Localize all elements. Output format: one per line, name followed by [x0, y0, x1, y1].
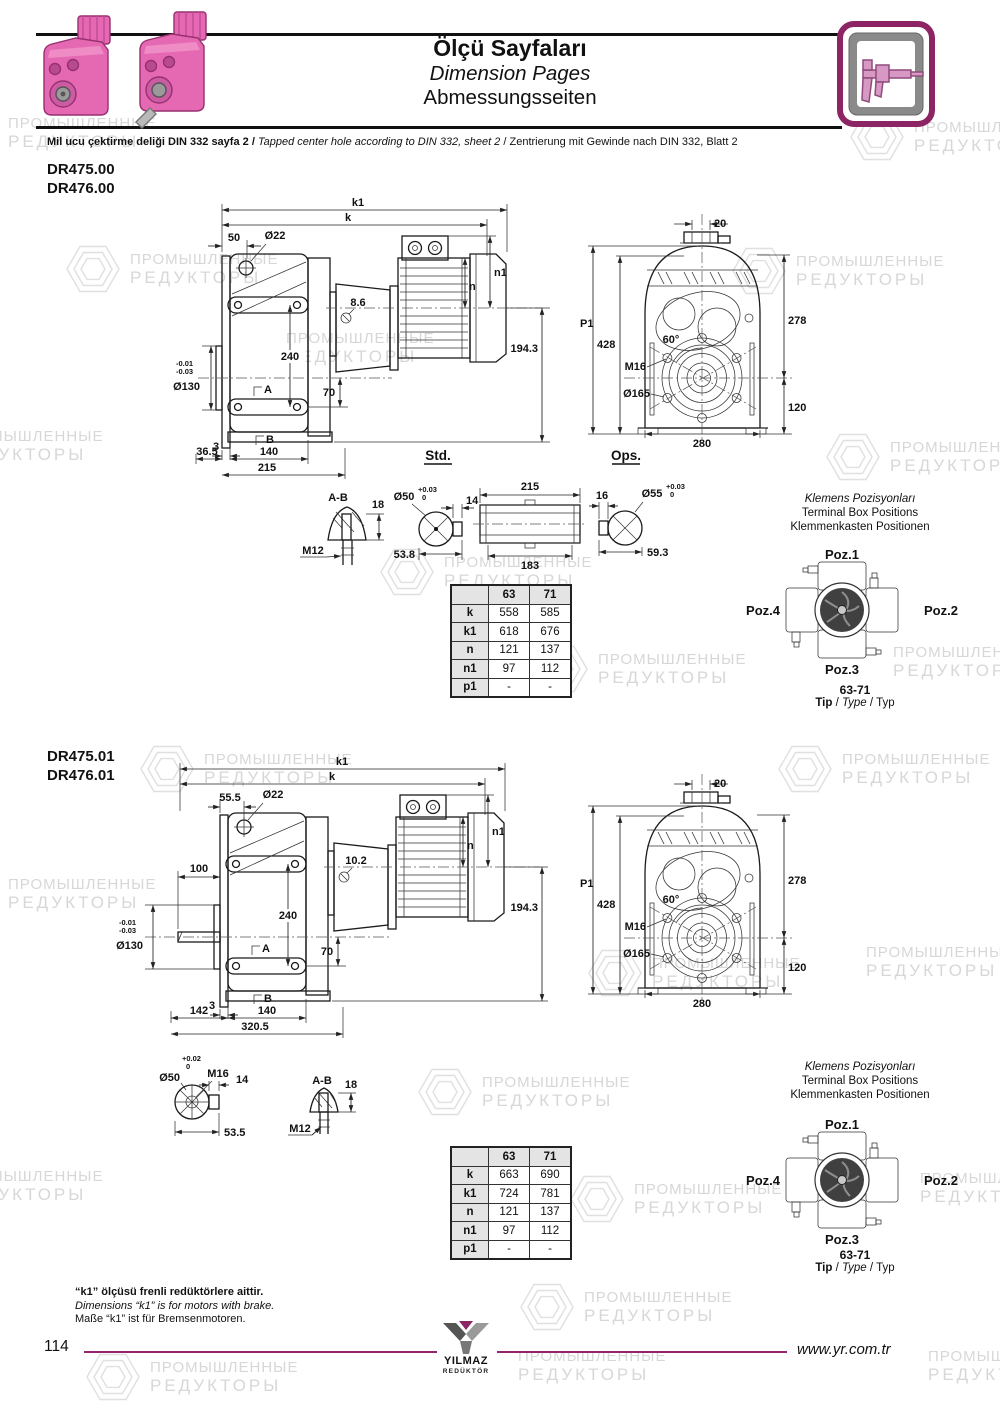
- dim-label: k: [345, 212, 352, 224]
- dim-label: M12: [302, 545, 323, 557]
- hollow-shaft-section: 215 183: [473, 481, 587, 572]
- watermark: ПРОМЫШЛЕННЫЕРЕДУКТОРЫ: [0, 1168, 103, 1205]
- dimension-table-1: 6371 k558585 k1618676 n121137 n197112 p1…: [450, 584, 572, 698]
- website-url: www.yr.com.tr: [797, 1341, 891, 1358]
- dim-label: Ø50: [159, 1072, 180, 1084]
- size-range-1: 63-71: [740, 683, 970, 697]
- watermark: ПРОМЫШЛЕННЫЕРЕДУКТОРЫ: [416, 1063, 630, 1121]
- cell: 97: [489, 660, 530, 679]
- ops-label: Ops.: [611, 448, 641, 463]
- dim-label: 240: [281, 351, 299, 363]
- dim-label: Ø130: [116, 940, 143, 952]
- dimension-labels: 20 P1 428 60° M16 Ø165 278 120 280: [580, 218, 806, 450]
- tolerance-label: 0: [670, 490, 674, 499]
- dim-label: 428: [597, 899, 615, 911]
- dim-label: Ø130: [173, 381, 200, 393]
- dim-label: n: [469, 281, 476, 293]
- dim-label: 120: [788, 962, 806, 974]
- tolerance-label: -0.03: [176, 367, 193, 376]
- cell: 121: [489, 641, 530, 660]
- watermark: ПРОМЫШЛЕННЫЕРЕДУКТОРЫ: [518, 1348, 666, 1385]
- dim-label: 59.3: [647, 547, 668, 559]
- dim-label: 215: [258, 462, 276, 474]
- dim-label: 278: [788, 315, 806, 327]
- page-title-block: Ölçü Sayfaları Dimension Pages Abmessung…: [250, 35, 770, 110]
- dim-label: k: [329, 771, 336, 783]
- row-header: n: [451, 1203, 489, 1222]
- dim-label: n1: [492, 826, 505, 838]
- tolerance-label: 0: [422, 493, 426, 502]
- dim-label: 278: [788, 875, 806, 887]
- front-view-drawing-1: 20 P1 428 60° M16 Ø165 278 120 280: [580, 210, 820, 452]
- gearmotor-solid-shaft: [136, 12, 206, 128]
- page-title: Ölçü Sayfaları: [250, 35, 770, 62]
- dim-label: Ø22: [265, 230, 286, 242]
- section-mark: B: [266, 434, 274, 446]
- model-codes-1: DR475.00 DR476.00: [47, 160, 115, 198]
- poz4-label: Poz.4: [746, 603, 781, 618]
- cell: 781: [530, 1185, 572, 1204]
- dim-label: 36.5: [196, 446, 217, 458]
- centerlines: [198, 308, 542, 378]
- dim-label: 20: [714, 778, 726, 790]
- dimension-labels: 20 P1 428 60° M16 Ø165 278 120 280: [580, 778, 806, 1010]
- cell: 112: [530, 1222, 572, 1241]
- dim-label: 183: [521, 560, 539, 572]
- cell: 137: [530, 641, 572, 660]
- footnote-tr: “k1” ölçüsü frenli redüktörlere aittir.: [75, 1286, 274, 1300]
- housing-outline: [638, 792, 768, 988]
- size-range-2: 63-71: [740, 1248, 970, 1262]
- dim-label: k1: [352, 197, 364, 209]
- cell: 112: [530, 660, 572, 679]
- dim-label: P1: [580, 878, 593, 890]
- row-header: n1: [451, 660, 489, 679]
- dim-label: 428: [597, 339, 615, 351]
- cell: 97: [489, 1222, 530, 1241]
- dim-label: 18: [345, 1079, 357, 1091]
- terminal-positions-diagram-1: Poz.1 Poz.2 Poz.3 Poz.4: [740, 548, 970, 678]
- dim-label: 3: [209, 1000, 215, 1012]
- dim-label: 142: [190, 1005, 208, 1017]
- dim-label: 60°: [663, 334, 680, 346]
- tolerance-label: +0.02: [182, 1054, 201, 1063]
- col-header: 71: [530, 585, 572, 604]
- page-number: 114: [44, 1338, 69, 1356]
- dim-label: 53.5: [224, 1127, 245, 1139]
- watermark: ПРОМЫШЛЕННЫЕРЕДУКТОРЫ: [928, 1348, 1000, 1385]
- dim-label: 10.2: [345, 855, 366, 867]
- din-note-en: Tapped center hole according to DIN 332,…: [258, 136, 500, 148]
- poz2-label: Poz.2: [924, 603, 958, 618]
- cell: 137: [530, 1203, 572, 1222]
- cell: -: [530, 678, 572, 697]
- dim-label: 194.3: [510, 343, 538, 355]
- gearmotor-photos: [36, 10, 246, 135]
- poz4-label: Poz.4: [746, 1173, 781, 1188]
- dim-label: Ø22: [263, 789, 284, 801]
- catalog-page: ПРОМЫШЛЕННЫЕРЕДУКТОРЫ ПРОМЫШЛЕННЫЕРЕДУКТ…: [0, 0, 1000, 1414]
- din-note-tr: Mil ucu çektirme deliği DIN 332 sayfa 2: [47, 136, 249, 148]
- section-mark: A: [264, 384, 272, 396]
- watermark: ПРОМЫШЛЕННЫЕРЕДУКТОРЫ: [0, 428, 103, 465]
- type-line-2: Tip / Type / Typ: [740, 1262, 970, 1274]
- shaft-details-2: Ø50 +0.02 0 M16 14 53.5 A-B 18 M12: [140, 1045, 440, 1157]
- section-mark: A: [262, 943, 270, 955]
- dim-label: 70: [321, 946, 333, 958]
- dim-label: n: [467, 840, 474, 852]
- dim-label: 320.5: [241, 1021, 269, 1033]
- watermark: ПРОМЫШЛЕННЫЕРЕДУКТОРЫ: [518, 1278, 732, 1336]
- side-view-drawing-1: k1 k 50 Ø22 8.6 n1 n 194.3 240 Ø130 -0.0…: [140, 196, 560, 482]
- row-header: p1: [451, 1240, 489, 1259]
- ops-shaft-end: 16 Ø55 +0.03 0 59.3: [589, 482, 685, 559]
- dim-label: 140: [260, 446, 278, 458]
- row-header: p1: [451, 678, 489, 697]
- watermark: ПРОМЫШЛЕННЫЕРЕДУКТОРЫ: [824, 428, 1000, 486]
- dim-label: 240: [279, 910, 297, 922]
- centerlines: [145, 867, 540, 937]
- dimension-table-2: 6371 k663690 k1724781 n121137 n197112 p1…: [450, 1146, 572, 1260]
- logo-text: YILMAZ: [430, 1355, 502, 1367]
- shaft-details-1: Std. Ops. A-B 18 M12 Ø50 +0.03 0 14 53.8: [280, 448, 740, 580]
- keyway-detail: A-B 18 M12: [288, 1075, 357, 1135]
- dimensions: [145, 763, 548, 1038]
- hex-swirl-icon: [84, 1348, 142, 1406]
- dim-label: Ø55: [642, 488, 663, 500]
- tolerance-label: -0.03: [119, 926, 136, 935]
- footer-rule-left: [84, 1351, 437, 1353]
- detail-lines: [178, 805, 474, 1005]
- logo-subtext: REDÜKTÖR: [430, 1368, 502, 1375]
- solid-shaft-end: Ø50 +0.02 0 M16 14 53.5: [159, 1054, 249, 1139]
- model-code: DR475.00: [47, 160, 115, 179]
- dimensions: [588, 220, 792, 438]
- std-shaft-end: Ø50 +0.03 0 14 53.8: [394, 485, 480, 561]
- keyway-detail: A-B 18 M12: [300, 492, 384, 565]
- poz2-label: Poz.2: [924, 1173, 958, 1188]
- dim-label: P1: [580, 318, 593, 330]
- terminal-box-titles-2: Klemens Pozisyonları Terminal Box Positi…: [752, 1060, 968, 1102]
- dim-label: 20: [714, 218, 726, 230]
- section-label: A-B: [328, 492, 348, 504]
- row-header: k: [451, 1166, 489, 1185]
- tolerance-label: 0: [186, 1062, 190, 1071]
- dim-label: 120: [788, 402, 806, 414]
- footer-rule-right: [497, 1351, 787, 1353]
- row-header: k1: [451, 623, 489, 642]
- tolerance-label: +0.03: [418, 485, 437, 494]
- dim-label: 280: [693, 998, 711, 1010]
- dim-label: k1: [336, 756, 348, 768]
- cell: 724: [489, 1185, 530, 1204]
- footnotes: “k1” ölçüsü frenli redüktörlere aittir. …: [75, 1286, 274, 1327]
- dim-label: Ø50: [394, 491, 415, 503]
- dim-label: 140: [258, 1005, 276, 1017]
- caliper-icon: [836, 20, 936, 128]
- row-header: k1: [451, 1185, 489, 1204]
- dim-label: M16: [625, 361, 646, 373]
- dim-label: 16: [596, 490, 608, 502]
- dim-label: Ø165: [623, 388, 650, 400]
- footnote-en: Dimensions “k1” is for motors with brake…: [75, 1300, 274, 1314]
- dim-label: M16: [207, 1068, 228, 1080]
- dim-label: 8.6: [350, 297, 365, 309]
- din-note-de: Zentrierung mit Gewinde nach DIN 332, Bl…: [510, 136, 738, 148]
- terminal-positions-diagram-2: Poz.1 Poz.2 Poz.3 Poz.4: [740, 1118, 970, 1248]
- cell: -: [489, 1240, 530, 1259]
- dim-label: 215: [521, 481, 539, 493]
- gearmotor-hollow-shaft: [44, 16, 110, 115]
- poz1-label: Poz.1: [825, 548, 859, 562]
- section-label: A-B: [312, 1075, 332, 1087]
- row-header: k: [451, 604, 489, 623]
- table-corner: [451, 1147, 489, 1166]
- dim-label: Ø165: [623, 948, 650, 960]
- poz3-label: Poz.3: [825, 1232, 859, 1247]
- dim-label: 18: [372, 499, 384, 511]
- hex-swirl-icon: [824, 428, 882, 486]
- din-note: Mil ucu çektirme deliği DIN 332 sayfa 2 …: [47, 136, 738, 148]
- col-header: 63: [489, 1147, 530, 1166]
- cell: 558: [489, 604, 530, 623]
- cell: 663: [489, 1166, 530, 1185]
- dim-label: 100: [190, 863, 208, 875]
- poz3-label: Poz.3: [825, 662, 859, 677]
- cell: -: [489, 678, 530, 697]
- section-mark: B: [264, 993, 272, 1005]
- hex-swirl-icon: [64, 240, 122, 298]
- centerlines: [624, 774, 794, 1004]
- dim-label: n1: [494, 267, 507, 279]
- tolerance-label: +0.03: [666, 482, 685, 491]
- side-view-drawing-2: k1 k 55.5 Ø22 10.2 100 n1 n 194.3 240 Ø1…: [105, 755, 565, 1047]
- housing-outline: [638, 232, 768, 428]
- cell: -: [530, 1240, 572, 1259]
- dim-label: 60°: [663, 894, 680, 906]
- type-line-1: Tip / Type / Typ: [740, 697, 970, 709]
- dim-label: 194.3: [510, 902, 538, 914]
- model-code: DR476.00: [47, 179, 115, 198]
- cell: 690: [530, 1166, 572, 1185]
- row-header: n1: [451, 1222, 489, 1241]
- page-title-de: Abmessungsseiten: [250, 86, 770, 110]
- dimensions: [196, 204, 550, 479]
- table-corner: [451, 585, 489, 604]
- dim-label: 14: [466, 495, 479, 507]
- cell: 618: [489, 623, 530, 642]
- front-view-drawing-2: 20 P1 428 60° M16 Ø165 278 120 280: [580, 770, 820, 1012]
- dim-label: 55.5: [219, 792, 240, 804]
- watermark: ПРОМЫШЛЕННЫЕРЕДУКТОРЫ: [866, 944, 1000, 981]
- hex-swirl-icon: [518, 1278, 576, 1336]
- hex-swirl-icon: [568, 1170, 626, 1228]
- terminal-box-titles-1: Klemens Pozisyonları Terminal Box Positi…: [752, 492, 968, 534]
- std-label: Std.: [425, 448, 451, 463]
- dim-label: M16: [625, 921, 646, 933]
- col-header: 63: [489, 585, 530, 604]
- row-header: n: [451, 641, 489, 660]
- watermark: ПРОМЫШЛЕННЫЕРЕДУКТОРЫ: [84, 1348, 298, 1406]
- dim-label: 70: [323, 387, 335, 399]
- dim-label: 53.8: [394, 549, 415, 561]
- col-header: 71: [530, 1147, 572, 1166]
- dim-label: 50: [228, 232, 240, 244]
- footnote-de: Maße “k1” ist für Bremsenmotoren.: [75, 1313, 274, 1327]
- yilmaz-logo-icon: [437, 1321, 495, 1355]
- centerlines: [624, 214, 794, 444]
- page-title-en: Dimension Pages: [250, 62, 770, 86]
- dim-label: M12: [289, 1123, 310, 1135]
- dim-label: 14: [236, 1074, 249, 1086]
- cell: 121: [489, 1203, 530, 1222]
- cell: 676: [530, 623, 572, 642]
- cell: 585: [530, 604, 572, 623]
- poz1-label: Poz.1: [825, 1118, 859, 1132]
- dimensions: [588, 780, 792, 998]
